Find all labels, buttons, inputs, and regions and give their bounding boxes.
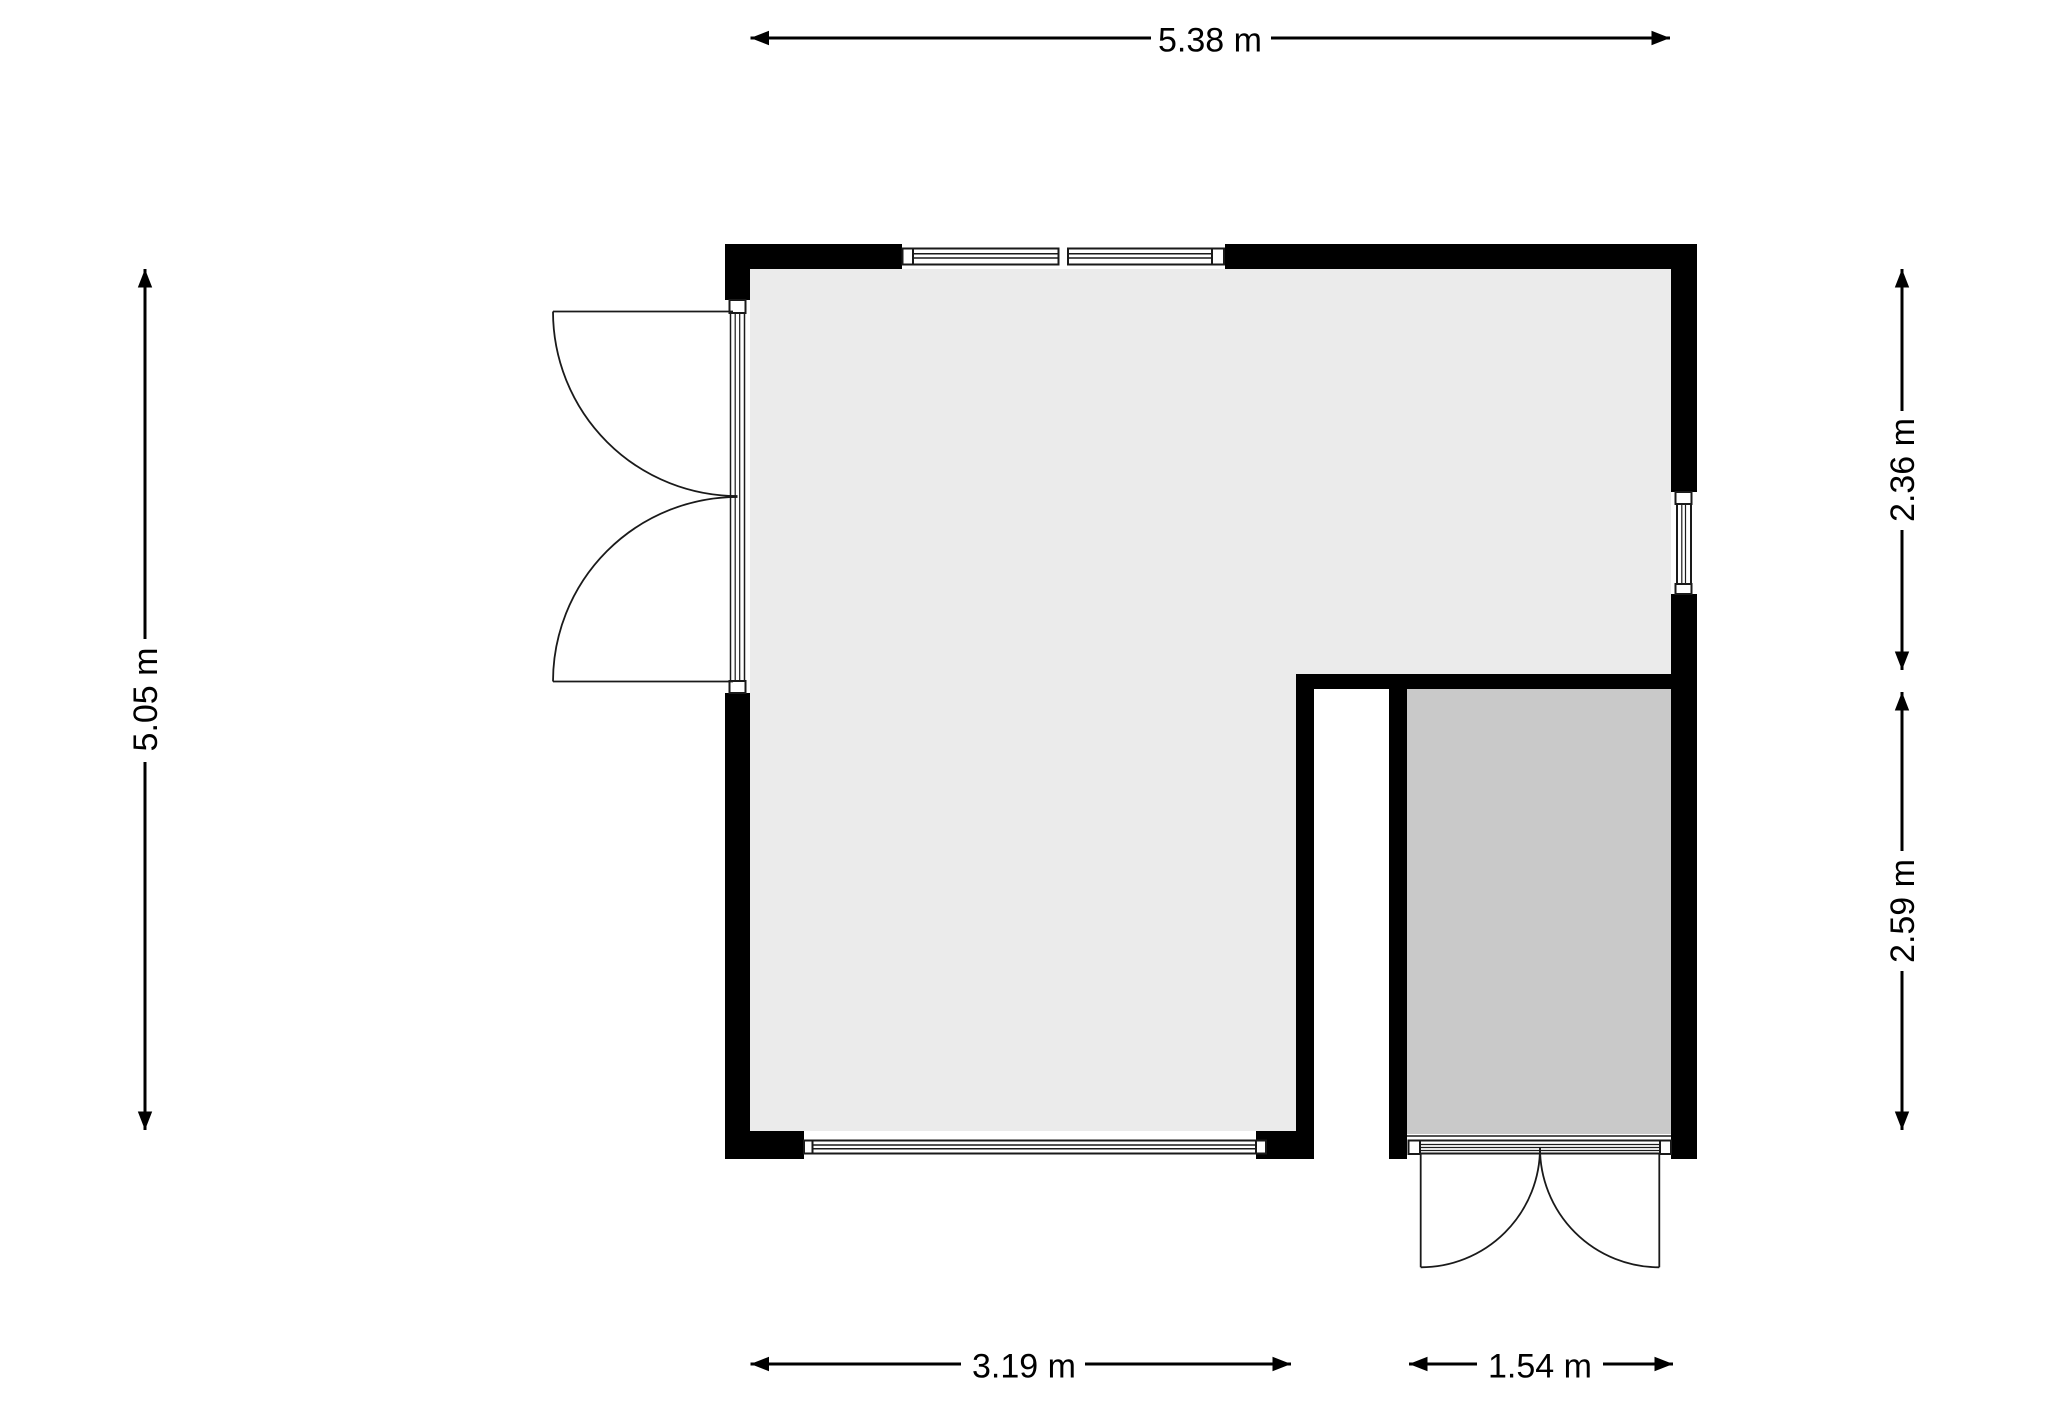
- svg-text:2.59 m: 2.59 m: [1884, 859, 1922, 963]
- svg-text:5.38 m: 5.38 m: [1158, 22, 1262, 60]
- svg-text:2.36 m: 2.36 m: [1884, 418, 1922, 522]
- svg-text:1.54 m: 1.54 m: [1488, 1348, 1592, 1386]
- svg-text:3.19 m: 3.19 m: [972, 1348, 1076, 1386]
- svg-text:5.05 m: 5.05 m: [127, 648, 165, 752]
